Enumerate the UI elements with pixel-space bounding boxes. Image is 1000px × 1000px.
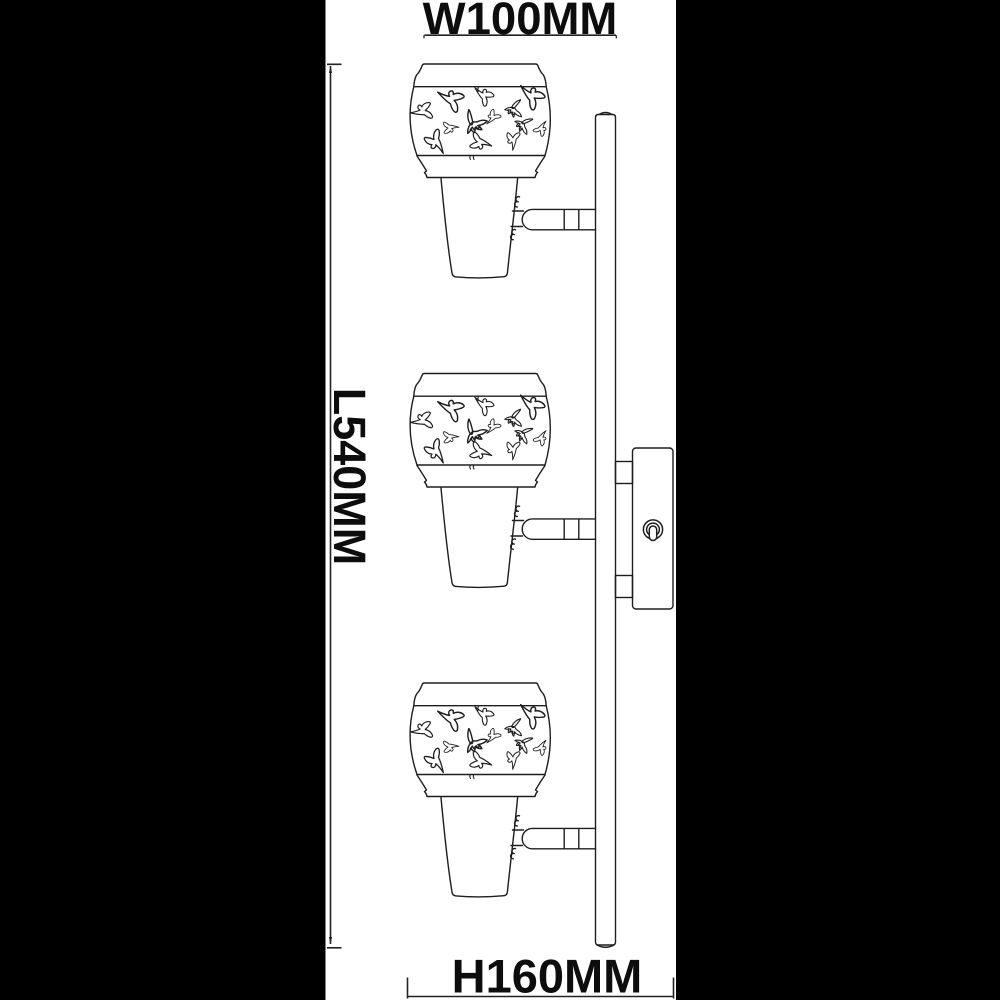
svg-text:L540MM: L540MM xyxy=(324,388,375,566)
svg-text:H160MM: H160MM xyxy=(452,950,643,1000)
svg-text:W100MM: W100MM xyxy=(423,0,618,44)
